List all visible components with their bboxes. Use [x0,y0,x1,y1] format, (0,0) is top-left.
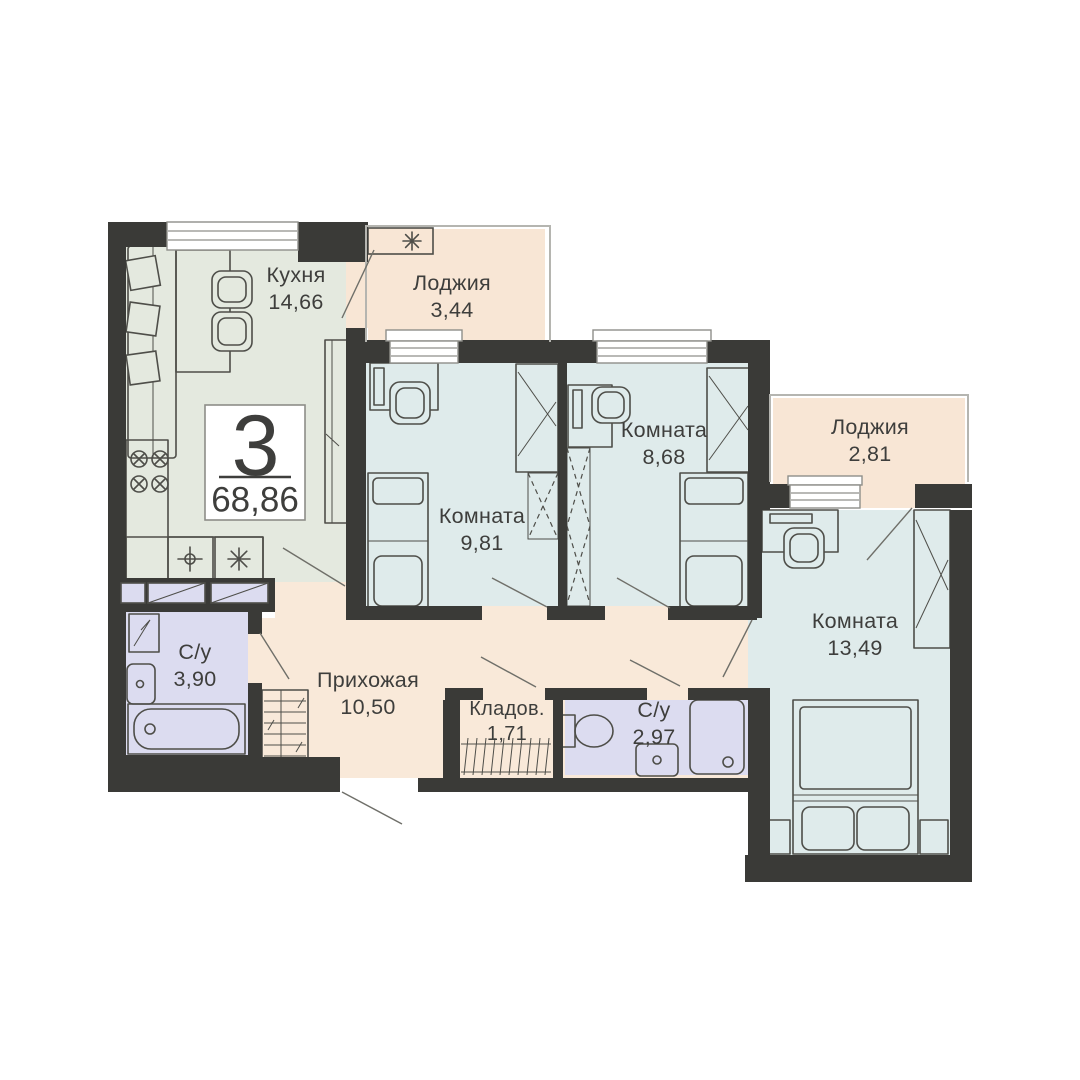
sofa-pillow [126,351,160,385]
wall [248,683,262,792]
room-area: 8,68 [621,444,707,471]
loggia-1-door-threshold [346,262,368,328]
room-label-room-13: Комната 13,49 [812,608,898,662]
entrance-door-swing-line [342,792,402,824]
room-label-loggia-1: Лоджия 3,44 [413,270,491,324]
wall [298,222,368,262]
loggia-2-door-threshold [858,484,915,508]
room-name: Кухня [266,262,325,289]
wall [458,340,597,363]
window [790,485,860,508]
room-name: Лоджия [831,414,909,441]
room-label-bathroom-1: С/у 3,90 [173,639,216,693]
window-sill [593,330,711,341]
room-area: 10,50 [317,694,419,721]
room-name: Комната [812,608,898,635]
hallway-floor-upper [275,582,346,622]
room-name: Комната [621,417,707,444]
window-sill [386,330,462,341]
wall [558,363,567,606]
room-area: 13,49 [812,635,898,662]
room-area: 14,66 [266,289,325,316]
room-name: Комната [439,503,525,530]
room-13-door-threshold [748,618,762,688]
wall-cabinets [121,583,268,603]
wall [443,700,460,778]
room-label-room-9: Комната 9,81 [439,503,525,557]
wall [748,484,792,508]
window [597,341,707,363]
room-8-door-threshold [605,606,668,620]
wall [108,222,126,792]
apartment-total-area: 68,86 [211,483,299,518]
floor-plan-page: 3 68,86 Кухня 14,66 Лоджия 3,44 Комната … [0,0,1080,1080]
room-area: 2,97 [632,724,675,751]
wall [668,606,757,620]
wall [745,855,972,882]
room-name: Прихожая [317,667,419,694]
room-area: 1,71 [469,722,545,747]
room-label-loggia-2: Лоджия 2,81 [831,414,909,468]
wall [108,755,262,792]
sofa-pillow [126,256,161,291]
room-label-hallway: Прихожая 10,50 [317,667,419,721]
room-area: 2,81 [831,441,909,468]
window [390,341,458,363]
window [167,222,298,250]
wall [346,340,390,363]
room-area: 3,44 [413,297,491,324]
room-area: 9,81 [439,530,525,557]
wall [262,757,340,792]
room-9-door-threshold [482,606,547,620]
wall [950,510,972,855]
room-name: Кладов. [469,697,545,722]
cooktop-asterisk-icon [228,548,250,570]
room-name: С/у [632,697,675,724]
room-name: С/у [173,639,216,666]
room-label-bathroom-2: С/у 2,97 [632,697,675,751]
ac-unit-asterisk-icon [403,232,421,250]
loggia-1-fixtures [368,228,433,254]
floor-plan-drawing [0,0,1080,1080]
wall [707,340,770,363]
wall [553,700,563,778]
wall [688,688,748,700]
room-label-storage: Кладов. 1,71 [469,697,545,747]
wall [346,328,366,620]
wall [915,484,972,508]
apartment-rooms-count: 3 [232,403,279,489]
wall [748,688,770,882]
room-name: Лоджия [413,270,491,297]
wall [748,510,762,618]
sofa-pillow [126,302,160,336]
ac-unit-box [368,228,433,254]
room-label-room-8: Комната 8,68 [621,417,707,471]
window-sill [788,476,862,485]
wall [418,778,757,792]
wall [248,612,262,634]
cabinet [121,583,145,603]
room-area: 3,90 [173,666,216,693]
room-label-kitchen: Кухня 14,66 [266,262,325,316]
wall [547,606,605,620]
wall [346,606,482,620]
